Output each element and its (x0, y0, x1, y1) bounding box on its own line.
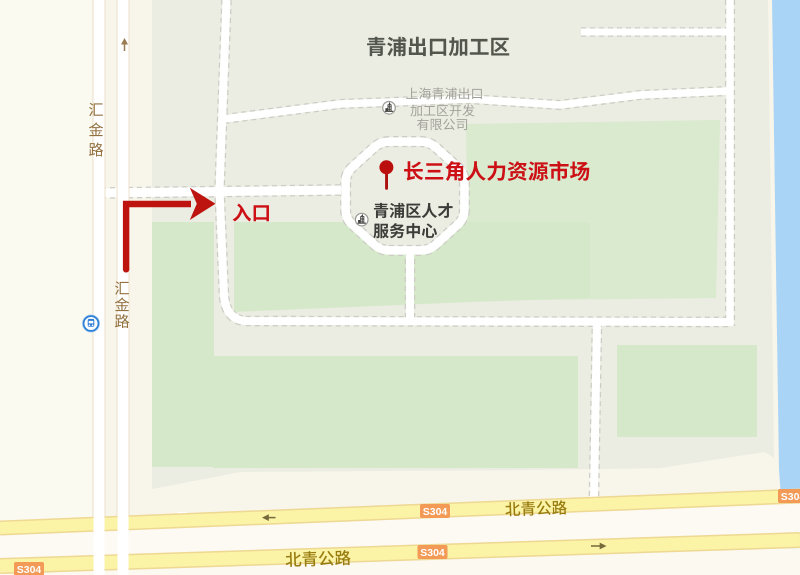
svg-text:S304: S304 (781, 491, 800, 503)
svg-text:S304: S304 (420, 547, 445, 559)
svg-text:S304: S304 (17, 564, 42, 575)
svg-text:S304: S304 (423, 506, 448, 518)
